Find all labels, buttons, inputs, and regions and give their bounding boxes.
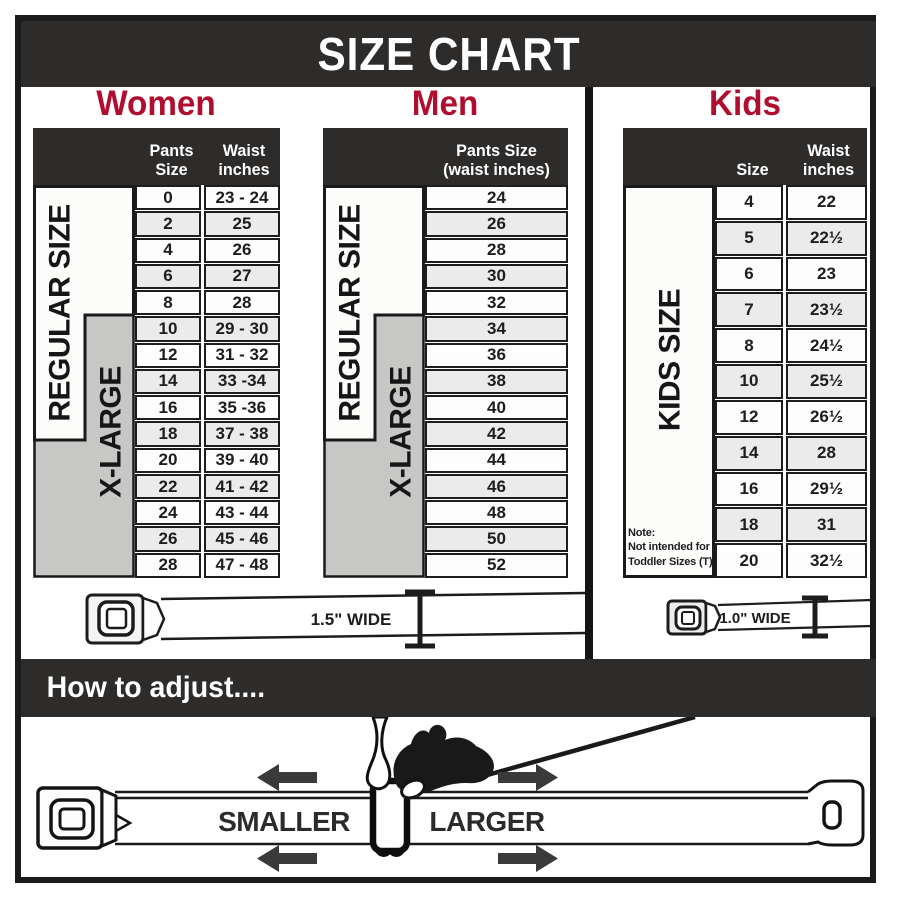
- men-regular-label: REGULAR SIZE: [334, 204, 367, 421]
- table-cell: 40: [425, 395, 568, 420]
- table-row: 1226½: [715, 400, 867, 435]
- table-cell: 27: [204, 264, 280, 289]
- table-cell: 8: [135, 290, 201, 315]
- table-row: 1029 - 30: [135, 316, 280, 341]
- table-row: 1433 -34: [135, 369, 280, 394]
- women-table-header: Pants Size Waist inches: [33, 128, 280, 185]
- width-measure-icon: [405, 592, 435, 646]
- section-title-women: Women: [61, 84, 251, 124]
- table-row: 723½: [715, 292, 867, 327]
- arrow-left-icon: [257, 764, 317, 791]
- table-cell: 20: [715, 543, 783, 578]
- kids-size-table: 422522½623723½824½1025½1226½14281629½183…: [715, 185, 867, 578]
- table-row: 24: [425, 185, 568, 210]
- table-cell: 26: [425, 211, 568, 236]
- table-cell: 18: [715, 507, 783, 542]
- table-row: 1231 - 32: [135, 343, 280, 368]
- table-cell: 28: [425, 238, 568, 263]
- women-size-range-labels: REGULAR SIZE X-LARGE: [33, 185, 135, 578]
- kids-belt-illustration: 1.0" WIDE: [599, 588, 876, 654]
- title-bar: SIZE CHART: [21, 21, 876, 87]
- table-row: 50: [425, 526, 568, 551]
- table-row: 46: [425, 474, 568, 499]
- table-cell: 29½: [786, 472, 867, 507]
- adjust-heading-bar: How to adjust....: [21, 659, 876, 717]
- table-row: 1629½: [715, 472, 867, 507]
- table-cell: 16: [715, 472, 783, 507]
- table-cell: 46: [425, 474, 568, 499]
- arrow-right-icon: [498, 845, 558, 872]
- table-cell: 12: [715, 400, 783, 435]
- table-row: 40: [425, 395, 568, 420]
- adult-belt-width-label: 1.5" WIDE: [311, 610, 392, 629]
- table-row: 2645 - 46: [135, 526, 280, 551]
- table-cell: 32½: [786, 543, 867, 578]
- pulled-strap-line: [473, 717, 695, 779]
- table-cell: 26½: [786, 400, 867, 435]
- table-row: 34: [425, 316, 568, 341]
- table-cell: 37 - 38: [204, 421, 280, 446]
- men-xlarge-label: X-LARGE: [385, 366, 418, 498]
- table-cell: 42: [425, 421, 568, 446]
- adjust-heading: How to adjust....: [21, 671, 265, 705]
- men-table-header: Pants Size (waist inches): [323, 128, 568, 185]
- table-row: 627: [135, 264, 280, 289]
- page-title: SIZE CHART: [317, 27, 580, 81]
- table-row: 1635 -36: [135, 395, 280, 420]
- belt-size-chart-poster: SIZE CHART Women Men Kids Pants Size Wai…: [0, 0, 900, 900]
- table-row: 824½: [715, 328, 867, 363]
- table-row: 225: [135, 211, 280, 236]
- table-cell: 8: [715, 328, 783, 363]
- table-cell: 24½: [786, 328, 867, 363]
- table-cell: 24: [425, 185, 568, 210]
- table-row: 522½: [715, 221, 867, 256]
- table-cell: 25½: [786, 364, 867, 399]
- table-cell: 25: [204, 211, 280, 236]
- table-cell: 24: [135, 500, 201, 525]
- table-cell: 23: [786, 257, 867, 292]
- table-cell: 14: [715, 436, 783, 471]
- table-row: 1428: [715, 436, 867, 471]
- seatbelt-buckle-icon: [668, 601, 720, 634]
- table-cell: 34: [425, 316, 568, 341]
- table-cell: 6: [135, 264, 201, 289]
- table-cell: 22½: [786, 221, 867, 256]
- table-cell: 16: [135, 395, 201, 420]
- table-cell: 36: [425, 343, 568, 368]
- table-cell: 10: [135, 316, 201, 341]
- kids-size-region: KIDS SIZE Note: Not intended for Toddler…: [623, 185, 715, 578]
- table-cell: 38: [425, 369, 568, 394]
- table-cell: 20: [135, 448, 201, 473]
- table-cell: 4: [135, 238, 201, 263]
- table-cell: 28: [786, 436, 867, 471]
- women-size-table: 023 - 242254266278281029 - 301231 - 3214…: [135, 185, 280, 578]
- table-row: 2032½: [715, 543, 867, 578]
- table-cell: 47 - 48: [204, 553, 280, 578]
- table-row: 48: [425, 500, 568, 525]
- women-col2-header: Waist inches: [210, 141, 278, 180]
- seatbelt-buckle-icon: [87, 595, 164, 643]
- table-cell: 18: [135, 421, 201, 446]
- table-cell: 32: [425, 290, 568, 315]
- adult-belt-illustration: 1.5" WIDE: [21, 588, 586, 654]
- men-size-table: 242628303234363840424446485052: [425, 185, 568, 578]
- table-row: 1025½: [715, 364, 867, 399]
- table-cell: 29 - 30: [204, 316, 280, 341]
- table-cell: 4: [715, 185, 783, 220]
- larger-label: LARGER: [429, 806, 545, 837]
- table-cell: 45 - 46: [204, 526, 280, 551]
- table-cell: 23 - 24: [204, 185, 280, 210]
- table-cell: 26: [135, 526, 201, 551]
- table-cell: 33 -34: [204, 369, 280, 394]
- table-cell: 0: [135, 185, 201, 210]
- table-row: 2241 - 42: [135, 474, 280, 499]
- table-cell: 39 - 40: [204, 448, 280, 473]
- section-title-kids: Kids: [650, 84, 840, 124]
- table-cell: 7: [715, 292, 783, 327]
- arrow-left-icon: [257, 845, 317, 872]
- table-cell: 35 -36: [204, 395, 280, 420]
- table-row: 426: [135, 238, 280, 263]
- table-cell: 31 - 32: [204, 343, 280, 368]
- women-col1-header: Pants Size: [137, 141, 206, 180]
- table-cell: 10: [715, 364, 783, 399]
- section-title-men: Men: [350, 84, 540, 124]
- kids-col1-header: Size: [717, 160, 788, 180]
- table-row: 828: [135, 290, 280, 315]
- table-cell: 48: [425, 500, 568, 525]
- table-row: 44: [425, 448, 568, 473]
- table-cell: 6: [715, 257, 783, 292]
- kids-belt-width-label: 1.0" WIDE: [719, 610, 790, 627]
- table-row: 1837 - 38: [135, 421, 280, 446]
- section-divider: [585, 87, 593, 659]
- table-cell: 52: [425, 553, 568, 578]
- kids-size-label-art: KIDS SIZE: [626, 188, 712, 575]
- table-row: 2443 - 44: [135, 500, 280, 525]
- table-row: 2847 - 48: [135, 553, 280, 578]
- table-row: 38: [425, 369, 568, 394]
- table-row: 623: [715, 257, 867, 292]
- table-cell: 28: [135, 553, 201, 578]
- table-cell: 30: [425, 264, 568, 289]
- belt-tip: [808, 781, 863, 845]
- table-cell: 31: [786, 507, 867, 542]
- table-cell: 26: [204, 238, 280, 263]
- women-regular-label: REGULAR SIZE: [44, 204, 77, 421]
- adjust-diagram: SMALLER LARGER: [21, 717, 876, 877]
- kids-note: Note: Not intended for Toddler Sizes (T): [628, 526, 712, 569]
- kids-table-header: Size Waist inches: [623, 128, 867, 185]
- men-col-header: Pants Size (waist inches): [429, 141, 565, 180]
- table-cell: 50: [425, 526, 568, 551]
- smaller-label: SMALLER: [218, 806, 350, 837]
- table-row: 023 - 24: [135, 185, 280, 210]
- table-row: 26: [425, 211, 568, 236]
- table-row: 52: [425, 553, 568, 578]
- men-size-range-labels: REGULAR SIZE X-LARGE: [323, 185, 425, 578]
- table-cell: 5: [715, 221, 783, 256]
- table-row: 1831: [715, 507, 867, 542]
- table-row: 30: [425, 264, 568, 289]
- table-cell: 2: [135, 211, 201, 236]
- table-row: 2039 - 40: [135, 448, 280, 473]
- table-cell: 22: [786, 185, 867, 220]
- table-cell: 28: [204, 290, 280, 315]
- table-cell: 44: [425, 448, 568, 473]
- table-row: 28: [425, 238, 568, 263]
- women-xlarge-label: X-LARGE: [95, 366, 128, 498]
- table-cell: 12: [135, 343, 201, 368]
- table-row: 422: [715, 185, 867, 220]
- table-cell: 23½: [786, 292, 867, 327]
- table-row: 32: [425, 290, 568, 315]
- table-cell: 14: [135, 369, 201, 394]
- table-row: 42: [425, 421, 568, 446]
- kids-col2-header: Waist inches: [792, 141, 865, 180]
- kids-size-label: KIDS SIZE: [654, 289, 687, 431]
- table-cell: 22: [135, 474, 201, 499]
- table-cell: 43 - 44: [204, 500, 280, 525]
- table-cell: 41 - 42: [204, 474, 280, 499]
- table-row: 36: [425, 343, 568, 368]
- seatbelt-buckle-icon: [38, 788, 130, 848]
